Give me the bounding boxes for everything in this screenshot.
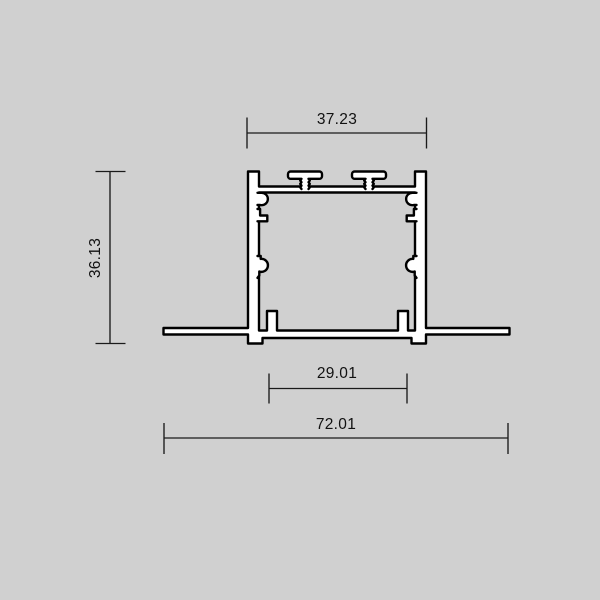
dimension-label-top-width: 37.23: [317, 111, 357, 128]
dimension-label-overall-width: 72.01: [316, 416, 356, 433]
drawing-background: [0, 0, 600, 600]
dimension-label-inner-bottom-width: 29.01: [317, 365, 357, 382]
dimension-label-overall-height: 36.13: [87, 238, 104, 278]
technical-drawing-page: 37.23 36.13 29.01 72.01: [0, 0, 600, 600]
upper-hook-boss: [258, 193, 268, 205]
technical-drawing-canvas: 37.23 36.13 29.01 72.01: [0, 0, 600, 600]
upper-hook-boss: [406, 193, 416, 205]
